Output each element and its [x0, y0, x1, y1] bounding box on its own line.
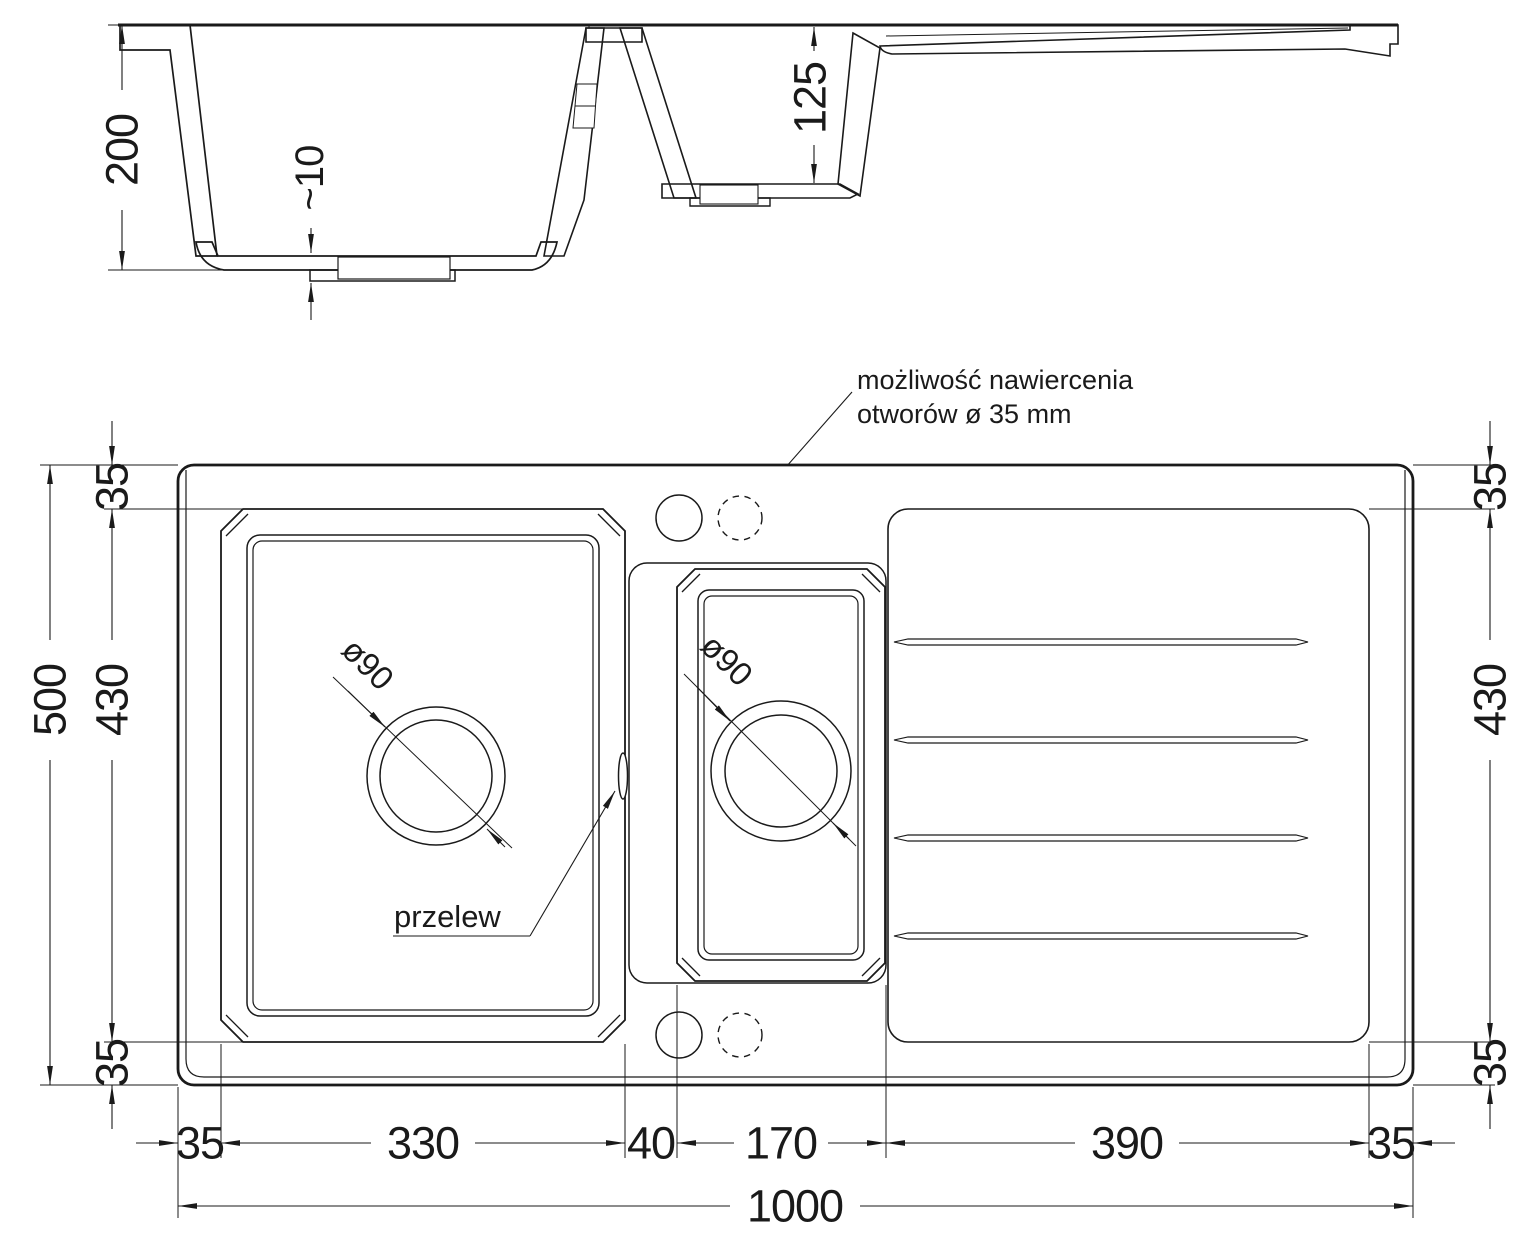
dim-divider-width-text: 40 — [627, 1118, 675, 1169]
dim-top-margin-right: 35 — [1465, 463, 1516, 511]
drill-note-line2: otworów ø 35 mm — [857, 399, 1072, 429]
dim-right-margin-text: 35 — [1367, 1118, 1415, 1169]
drainboard-groove — [894, 639, 1308, 645]
plan-view: ø90 przelew ø90 — [178, 465, 1413, 1085]
drainboard-groove — [894, 933, 1308, 939]
overflow-label: przelew — [394, 899, 501, 934]
dim-bottom-margin-left: 35 — [87, 1039, 138, 1087]
dim-floor-thickness: ~10 — [288, 146, 332, 211]
small-bowl-drain-recess — [700, 185, 758, 204]
dim-overall-width-text: 1000 — [747, 1181, 843, 1232]
faucet-hole-bottom — [656, 1012, 702, 1058]
drainboard-slab — [880, 25, 1398, 56]
dim-depth-200-text: 200 — [97, 114, 148, 186]
drill-note-line1: możliwość nawiercenia — [857, 365, 1134, 395]
overflow-slot — [619, 753, 628, 799]
dim-overall-height: 500 — [25, 640, 76, 760]
dim-inner-height-left: 430 — [87, 640, 138, 760]
section-view: 200 ~10 125 — [97, 25, 1399, 320]
dim-inner-height-left-text: 430 — [87, 664, 138, 736]
small-bowl-right-wall — [838, 33, 880, 196]
dim-top-margin-left: 35 — [87, 463, 138, 511]
dim-bottom-margin-right: 35 — [1465, 1039, 1516, 1087]
dim-floor-thickness-text: ~10 — [288, 146, 332, 211]
dim-small-bowl-width-text: 170 — [745, 1118, 817, 1169]
dim-top-margin-left-text: 35 — [87, 463, 138, 511]
main-bowl-drain-recess — [338, 257, 450, 279]
dim-small-depth-text: 125 — [785, 62, 836, 134]
dim-inner-height-right-text: 430 — [1465, 664, 1516, 736]
dim-overall-height-text: 500 — [25, 664, 76, 736]
main-bowl — [221, 509, 625, 1042]
faucet-hole-top — [656, 495, 702, 541]
dim-bottom-margin-right-text: 35 — [1465, 1039, 1516, 1087]
faucet-hole-optional-bottom — [718, 1013, 762, 1057]
divider-plateau — [586, 28, 642, 42]
dim-top-margin-right-text: 35 — [1465, 463, 1516, 511]
small-bowl — [677, 569, 885, 981]
drainboard — [888, 509, 1369, 1042]
drainboard-groove — [894, 737, 1308, 743]
dim-inner-height-right: 430 — [1465, 640, 1516, 760]
drawing-svg: 200 ~10 125 możliwość nawiercenia otworó… — [0, 0, 1530, 1238]
dim-depth-200: 200 — [97, 90, 148, 210]
dim-drainer-width-text: 390 — [1091, 1118, 1163, 1169]
dim-main-bowl-width-text: 330 — [387, 1118, 459, 1169]
dim-small-depth: 125 — [785, 51, 836, 145]
dim-bottom-margin-left-text: 35 — [87, 1039, 138, 1087]
dim-left-margin-text: 35 — [176, 1118, 224, 1169]
faucet-hole-optional-top — [718, 496, 762, 540]
drainboard-groove — [894, 835, 1308, 841]
technical-drawing-sink: 200 ~10 125 możliwość nawiercenia otworó… — [0, 0, 1530, 1238]
